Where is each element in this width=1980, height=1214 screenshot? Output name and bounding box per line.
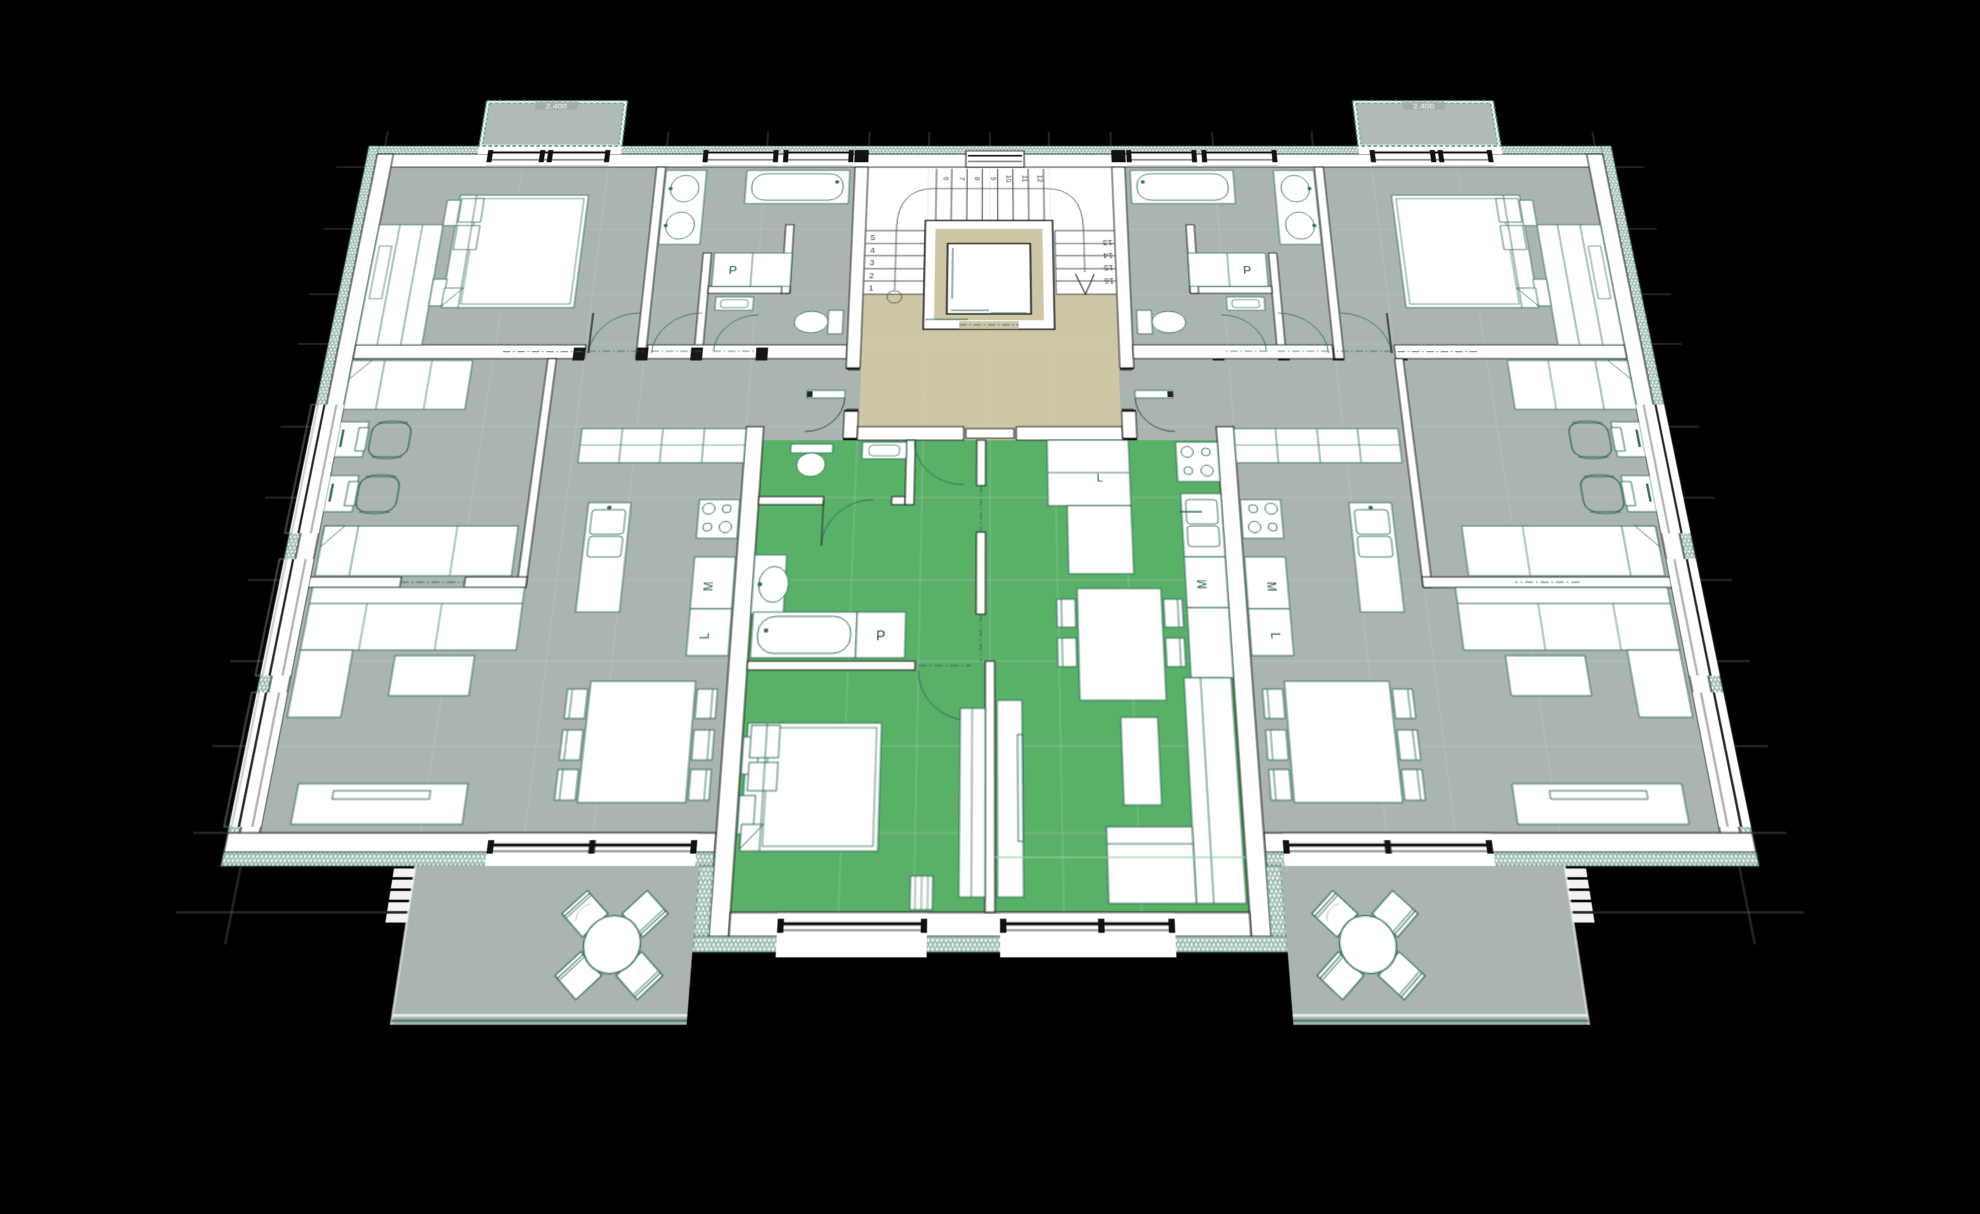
svg-text:16: 16: [1104, 276, 1114, 285]
svg-text:L: L: [1267, 633, 1282, 639]
svg-text:7: 7: [957, 177, 967, 181]
svg-text:14: 14: [1102, 251, 1113, 260]
svg-text:9: 9: [988, 177, 998, 181]
svg-text:12: 12: [1035, 175, 1045, 182]
svg-text:2.400: 2.400: [545, 102, 567, 110]
svg-text:M: M: [702, 582, 717, 591]
svg-text:6: 6: [941, 177, 951, 181]
svg-text:L: L: [698, 633, 713, 639]
svg-text:2: 2: [869, 272, 874, 281]
svg-text:10: 10: [1004, 175, 1014, 182]
svg-text:M: M: [1196, 580, 1210, 589]
svg-text:P: P: [728, 265, 737, 277]
svg-text:11: 11: [1020, 175, 1030, 182]
svg-text:1: 1: [868, 284, 873, 293]
svg-text:2.400: 2.400: [1413, 102, 1435, 110]
svg-text:13: 13: [1103, 238, 1113, 246]
svg-text:P: P: [876, 629, 886, 643]
svg-text:L: L: [1096, 473, 1103, 485]
svg-text:8: 8: [973, 177, 983, 181]
svg-text:3: 3: [869, 259, 874, 268]
svg-text:P: P: [1243, 265, 1252, 277]
svg-text:M: M: [1263, 582, 1278, 591]
svg-text:5: 5: [870, 234, 875, 242]
svg-text:15: 15: [1104, 263, 1114, 272]
